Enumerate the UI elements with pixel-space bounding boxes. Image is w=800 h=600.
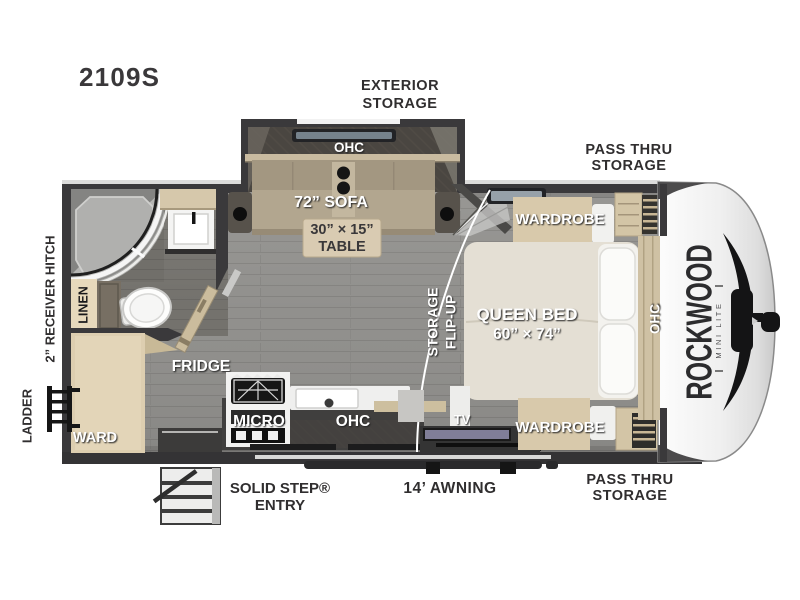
svg-text:2” RECEIVER HITCH: 2” RECEIVER HITCH [42,235,57,362]
svg-text:STORAGE: STORAGE [425,288,441,357]
svg-text:OHC: OHC [648,304,663,334]
svg-text:MICRO: MICRO [233,413,285,430]
svg-text:WARDROBE: WARDROBE [515,419,604,436]
svg-text:72” SOFA: 72” SOFA [294,194,368,211]
svg-text:PASS THRU: PASS THRU [586,472,673,488]
svg-text:60” × 74”: 60” × 74” [493,326,561,343]
svg-text:TV: TV [454,412,471,427]
svg-text:FLIP-UP: FLIP-UP [443,295,459,349]
svg-text:TABLE: TABLE [318,239,366,255]
svg-text:STORAGE: STORAGE [592,158,667,174]
svg-text:OHC: OHC [336,413,370,430]
svg-text:WARDROBE: WARDROBE [515,211,604,228]
svg-text:WARD: WARD [73,430,117,446]
svg-text:OHC: OHC [334,140,364,155]
svg-text:STORAGE: STORAGE [363,96,438,112]
svg-text:30” × 15”: 30” × 15” [310,222,373,238]
svg-text:STORAGE: STORAGE [593,488,668,504]
svg-text:ENTRY: ENTRY [255,497,305,514]
svg-text:FRIDGE: FRIDGE [172,358,231,375]
svg-text:2109S: 2109S [79,62,160,92]
svg-text:MINI LITE: MINI LITE [714,301,723,358]
svg-text:LADDER: LADDER [19,388,34,443]
svg-text:SOLID STEP®: SOLID STEP® [230,480,330,497]
svg-text:QUEEN BED: QUEEN BED [476,305,577,324]
svg-text:14’ AWNING: 14’ AWNING [403,480,496,497]
svg-text:EXTERIOR: EXTERIOR [361,78,439,94]
svg-text:PASS THRU: PASS THRU [585,142,672,158]
svg-text:LINEN: LINEN [76,286,90,324]
